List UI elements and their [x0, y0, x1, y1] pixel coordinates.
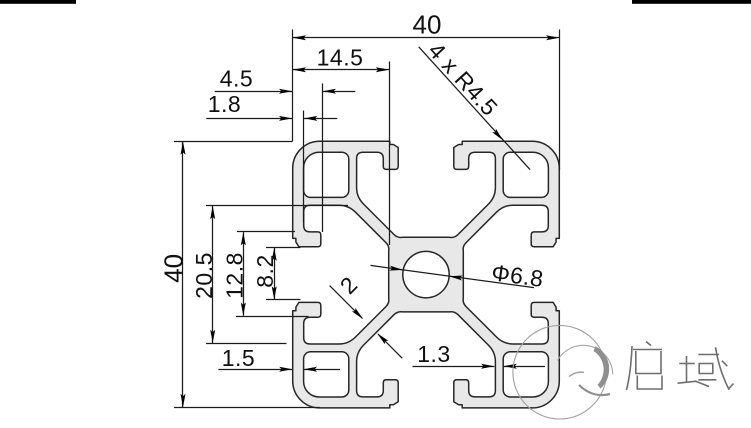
svg-text:4 x R4.5: 4 x R4.5 — [423, 37, 503, 121]
svg-text:12.8: 12.8 — [221, 252, 247, 299]
svg-text:4.5: 4.5 — [220, 66, 253, 92]
svg-text:1.3: 1.3 — [417, 341, 450, 367]
svg-text:1.8: 1.8 — [208, 91, 241, 117]
svg-text:Φ6.8: Φ6.8 — [490, 259, 545, 292]
svg-text:8.2: 8.2 — [252, 254, 278, 287]
svg-text:14.5: 14.5 — [317, 45, 364, 71]
svg-text:20.5: 20.5 — [191, 252, 217, 299]
svg-text:40: 40 — [158, 254, 188, 283]
svg-text:1.5: 1.5 — [222, 345, 255, 371]
svg-text:40: 40 — [413, 10, 442, 40]
